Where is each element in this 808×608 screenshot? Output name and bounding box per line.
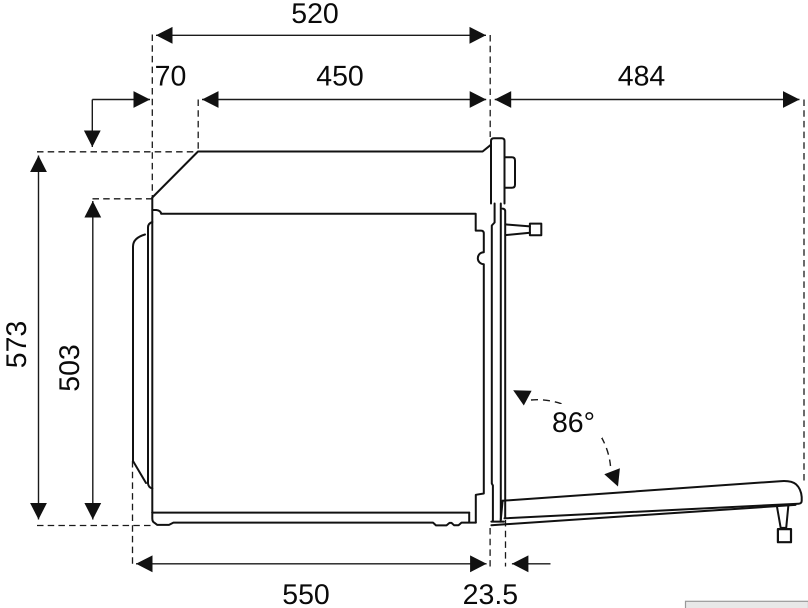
svg-text:484: 484 [618, 61, 666, 93]
svg-text:70: 70 [155, 61, 187, 93]
svg-text:86°: 86° [552, 407, 595, 439]
svg-text:550: 550 [282, 579, 330, 608]
svg-text:23.5: 23.5 [463, 579, 518, 608]
svg-text:520: 520 [291, 0, 339, 30]
svg-text:503: 503 [54, 344, 86, 392]
svg-text:573: 573 [1, 321, 33, 369]
svg-text:450: 450 [316, 61, 364, 93]
